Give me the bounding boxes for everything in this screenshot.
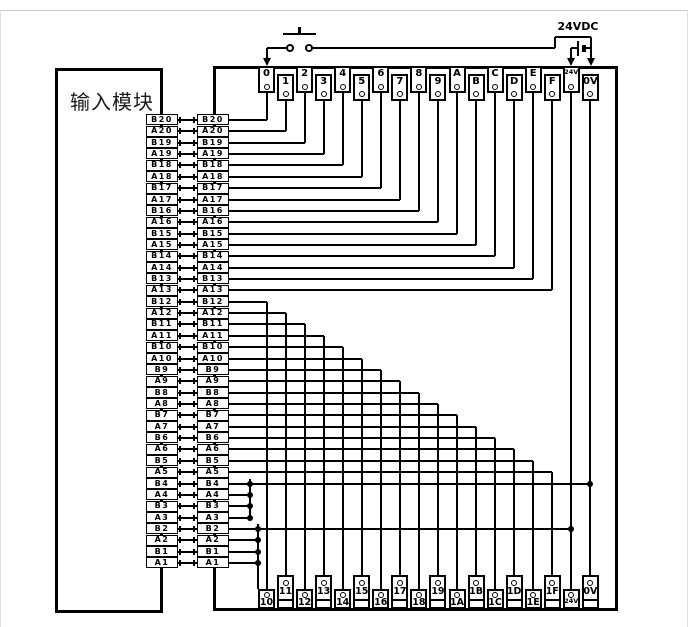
- terminal-label: 18: [409, 597, 429, 608]
- pin-label: A13: [197, 285, 229, 294]
- wire-row-B11: [229, 323, 305, 325]
- pin-label: B16: [197, 206, 229, 215]
- terminal-label: 6: [371, 68, 391, 79]
- pin-label: A16: [197, 217, 229, 226]
- pin-link-tick: [179, 276, 181, 282]
- pin-label: A6: [146, 444, 178, 453]
- terminal-label: 3: [314, 76, 334, 87]
- wire-row-B10: [229, 346, 343, 348]
- pin-link-tick: [179, 458, 181, 464]
- bus-24v: [570, 93, 572, 594]
- pin-label: B6: [146, 433, 178, 442]
- wire-top-3: [323, 100, 325, 154]
- terminal-label: 5: [352, 76, 372, 87]
- pin-link-tick: [193, 356, 195, 362]
- wire-row-B2: [229, 528, 571, 530]
- wire-v: [266, 48, 268, 58]
- wire-v: [570, 48, 572, 58]
- pin-link-tick: [179, 537, 181, 543]
- wire-top-5: [361, 100, 363, 177]
- wire-row-A20: [229, 130, 286, 132]
- terminal-label: 1E: [523, 597, 543, 608]
- terminal-label: 17: [390, 586, 410, 597]
- pin-label: B1: [197, 547, 229, 556]
- pin-link-tick: [179, 367, 181, 373]
- terminal-screw-icon: [283, 91, 289, 97]
- wire-top-7: [399, 100, 401, 200]
- pin-link-tick: [193, 242, 195, 248]
- pin-label: B14: [197, 251, 229, 260]
- pin-link-tick: [179, 231, 181, 237]
- pin-label: B7: [146, 410, 178, 419]
- wire-row-B15: [229, 233, 457, 235]
- terminal-label: 10: [257, 597, 277, 608]
- wire-row-B8: [229, 392, 419, 394]
- pin-link-tick: [193, 560, 195, 566]
- pin-label: A9: [146, 376, 178, 385]
- pin-label: B2: [146, 524, 178, 533]
- wire-row-B5: [229, 460, 533, 462]
- pin-label: A15: [197, 240, 229, 249]
- pin-link-tick: [193, 287, 195, 293]
- wire-top-4: [342, 93, 344, 165]
- switch-actuator: [298, 27, 301, 34]
- wire-row-A8: [229, 403, 438, 405]
- pin-label: B13: [197, 274, 229, 283]
- terminal-divider: [507, 599, 522, 601]
- terminal-label: 19: [428, 586, 448, 597]
- wire-bottom-1D: [513, 449, 515, 583]
- pin-label: A14: [146, 263, 178, 272]
- pin-label: B18: [146, 160, 178, 169]
- pin-link-tick: [179, 208, 181, 214]
- pin-link-tick: [193, 492, 195, 498]
- terminal-screw-icon: [568, 84, 574, 90]
- pin-label: A19: [146, 149, 178, 158]
- terminal-label: 13: [314, 586, 334, 597]
- wire-row-B16: [229, 210, 419, 212]
- arrow-down-icon: [587, 58, 595, 66]
- terminal-label: F: [542, 76, 562, 87]
- wire-top-8: [418, 93, 420, 211]
- terminal-label: 1F: [542, 586, 562, 597]
- pin-link-tick: [179, 299, 181, 305]
- pin-link-tick: [179, 321, 181, 327]
- pin-label: B15: [146, 229, 178, 238]
- terminal-screw-icon: [302, 84, 308, 90]
- wire-row-A13: [229, 289, 552, 291]
- terminal-screw-icon: [397, 91, 403, 97]
- terminal-label: 0V: [580, 76, 600, 87]
- pin-link-tick: [193, 367, 195, 373]
- pin-link-tick: [179, 401, 181, 407]
- pin-link-tick: [193, 412, 195, 418]
- wire-top-9: [437, 100, 439, 222]
- pin-link-tick: [193, 481, 195, 487]
- pin-label: A20: [197, 126, 229, 135]
- window-left-border: [0, 10, 1, 627]
- pin-link-tick: [193, 299, 195, 305]
- pin-link-tick: [179, 310, 181, 316]
- switch-contact-icon: [286, 44, 294, 52]
- pin-link-tick: [193, 140, 195, 146]
- pin-link-tick: [179, 197, 181, 203]
- wire-v: [554, 37, 556, 48]
- pin-link-tick: [179, 242, 181, 248]
- pin-label: A13: [146, 285, 178, 294]
- pin-link-tick: [179, 481, 181, 487]
- pin-link-tick: [179, 344, 181, 350]
- terminal-label: C: [485, 68, 505, 79]
- pin-link-tick: [193, 197, 195, 203]
- wire-top-C: [494, 93, 496, 256]
- wire-top-6: [380, 93, 382, 188]
- wire-h: [585, 47, 591, 49]
- pin-link-tick: [193, 549, 195, 555]
- terminal-label: 11: [276, 586, 296, 597]
- pin-link-tick: [193, 515, 195, 521]
- terminal-label: E: [523, 68, 543, 79]
- wire-row-A18: [229, 176, 362, 178]
- pin-label: B9: [146, 365, 178, 374]
- pin-label: B12: [197, 297, 229, 306]
- pin-label: A10: [146, 354, 178, 363]
- terminal-screw-icon: [378, 84, 384, 90]
- terminal-label: 9: [428, 76, 448, 87]
- pin-link-tick: [193, 231, 195, 237]
- terminal-divider: [316, 599, 331, 601]
- pin-label: B13: [146, 274, 178, 283]
- battery-long-plate-icon: [577, 41, 579, 56]
- wire-top-0: [266, 93, 268, 120]
- wire-row-A5: [229, 471, 552, 473]
- wire-bottom-1A: [456, 415, 458, 594]
- junction-dot-icon: [247, 481, 253, 487]
- pin-label: B4: [197, 479, 229, 488]
- terminal-label: 1D: [504, 586, 524, 597]
- wire-row-A16: [229, 221, 438, 223]
- wire-row-A7: [229, 426, 476, 428]
- terminal-label: 14: [333, 597, 353, 608]
- pin-label: B1: [146, 547, 178, 556]
- junction-dot-icon: [247, 515, 253, 521]
- pin-label: B19: [146, 138, 178, 147]
- wire-row-B17: [229, 187, 381, 189]
- pin-link-tick: [179, 333, 181, 339]
- pin-label: A12: [146, 308, 178, 317]
- pin-label: B17: [146, 183, 178, 192]
- terminal-screw-icon: [321, 91, 327, 97]
- pin-label: B7: [197, 410, 229, 419]
- pin-link-tick: [179, 560, 181, 566]
- wire-row: [229, 562, 258, 564]
- pin-label: A10: [197, 354, 229, 363]
- pin-link-tick: [179, 378, 181, 384]
- terminal-divider: [469, 599, 484, 601]
- pin-label: B6: [197, 433, 229, 442]
- pin-link-tick: [193, 253, 195, 259]
- pin-link-tick: [193, 321, 195, 327]
- pin-link-tick: [193, 469, 195, 475]
- wire-top-2: [304, 93, 306, 143]
- switch-contact-icon: [305, 44, 313, 52]
- terminal-label: 7: [390, 76, 410, 87]
- pin-link-tick: [179, 253, 181, 259]
- terminal-screw-icon: [264, 84, 270, 90]
- wire-row-A9: [229, 380, 400, 382]
- pin-link-tick: [193, 276, 195, 282]
- wire-top-D: [513, 100, 515, 268]
- pin-label: B9: [197, 365, 229, 374]
- terminal-label: 0V: [580, 586, 600, 597]
- pin-label: A18: [197, 172, 229, 181]
- wire-row-A19: [229, 153, 324, 155]
- wire-row-B7: [229, 414, 457, 416]
- arrow-down-icon: [263, 58, 271, 66]
- pin-link-tick: [179, 515, 181, 521]
- terminal-label: B: [466, 76, 486, 87]
- pin-label: A17: [146, 195, 178, 204]
- terminal-label: 24V: [561, 68, 581, 76]
- pin-link-tick: [193, 390, 195, 396]
- wire-row-A6: [229, 448, 514, 450]
- pin-link-tick: [179, 265, 181, 271]
- pin-link-tick: [193, 378, 195, 384]
- pin-link-tick: [179, 356, 181, 362]
- junction-dot-icon: [255, 526, 261, 532]
- pin-label: A11: [146, 331, 178, 340]
- pin-label: B3: [146, 501, 178, 510]
- pin-label: B10: [197, 342, 229, 351]
- pin-label: A20: [146, 126, 178, 135]
- terminal-label: 2: [295, 68, 315, 79]
- pin-label: A1: [146, 558, 178, 567]
- pin-label: B18: [197, 160, 229, 169]
- pin-link-tick: [179, 128, 181, 134]
- wire-row-B20: [229, 119, 267, 121]
- pin-link-tick: [193, 128, 195, 134]
- terminal-divider: [392, 599, 407, 601]
- pin-label: A11: [197, 331, 229, 340]
- wire-row-A12: [229, 312, 286, 314]
- pin-label: A14: [197, 263, 229, 272]
- terminal-screw-icon: [359, 91, 365, 97]
- terminal-label: 8: [409, 68, 429, 79]
- supply-voltage-label: 24VDC: [552, 20, 604, 33]
- junction-dot-icon: [587, 481, 593, 487]
- pin-label: A16: [146, 217, 178, 226]
- wire-row: [229, 551, 258, 553]
- pin-label: A2: [197, 535, 229, 544]
- pin-label: B5: [146, 456, 178, 465]
- pin-link-tick: [193, 174, 195, 180]
- pin-link-tick: [179, 162, 181, 168]
- wiring-diagram: 输入模块 24VDC B20B20A20A20B19B19A19A19B18B1…: [0, 0, 688, 627]
- pin-label: B4: [146, 479, 178, 488]
- pin-link-tick: [193, 537, 195, 543]
- pin-link-tick: [179, 140, 181, 146]
- arrow-down-icon: [567, 58, 575, 66]
- pin-label: B8: [197, 388, 229, 397]
- pin-label: B3: [197, 501, 229, 510]
- wire-top-A: [456, 93, 458, 234]
- wire-h: [555, 36, 591, 38]
- pin-link-tick: [179, 469, 181, 475]
- pin-link-tick: [193, 435, 195, 441]
- wire-row-B9: [229, 369, 381, 371]
- wire-row-A17: [229, 199, 400, 201]
- terminal-screw-icon: [340, 84, 346, 90]
- pin-label: B20: [146, 115, 178, 124]
- input-module-label: 输入模块: [62, 86, 162, 115]
- junction-dot-icon: [255, 549, 261, 555]
- pin-label: B10: [146, 342, 178, 351]
- pin-link-tick: [193, 446, 195, 452]
- terminal-screw-icon: [416, 84, 422, 90]
- junction-dot-icon: [247, 492, 253, 498]
- pin-label: A17: [197, 195, 229, 204]
- wire-row-B6: [229, 437, 495, 439]
- terminal-label: D: [504, 76, 524, 87]
- terminal-screw-icon: [473, 91, 479, 97]
- terminal-divider: [354, 599, 369, 601]
- pin-link-tick: [193, 458, 195, 464]
- wire-row-A11: [229, 335, 324, 337]
- pin-link-tick: [193, 117, 195, 123]
- wire-top-F: [551, 100, 553, 290]
- pin-link-tick: [193, 310, 195, 316]
- terminal-label: 24V: [561, 597, 581, 605]
- pin-label: A5: [197, 467, 229, 476]
- wire-row-B18: [229, 164, 343, 166]
- pin-label: A3: [197, 513, 229, 522]
- terminal-label: 1B: [466, 586, 486, 597]
- pin-label: A12: [197, 308, 229, 317]
- wire-row-B12: [229, 301, 267, 303]
- pin-label: B11: [197, 319, 229, 328]
- pin-label: A8: [146, 399, 178, 408]
- pin-link-tick: [179, 424, 181, 430]
- pin-label: B8: [146, 388, 178, 397]
- pin-link-tick: [179, 287, 181, 293]
- terminal-divider: [583, 599, 598, 601]
- terminal-label: 1A: [447, 597, 467, 608]
- terminal-label: 16: [371, 597, 391, 608]
- pin-link-tick: [179, 435, 181, 441]
- wire-bottom-19: [437, 404, 439, 583]
- pin-link-tick: [179, 446, 181, 452]
- pin-label: A4: [197, 490, 229, 499]
- pin-link-tick: [193, 185, 195, 191]
- wire-top-1: [285, 100, 287, 131]
- terminal-label: 0: [257, 68, 277, 79]
- pin-link-tick: [179, 174, 181, 180]
- pin-link-tick: [179, 549, 181, 555]
- terminal-label: 15: [352, 586, 372, 597]
- wire-row-A15: [229, 244, 476, 246]
- pin-label: A1: [197, 558, 229, 567]
- terminal-screw-icon: [492, 84, 498, 90]
- wire-bottom-18: [418, 393, 420, 594]
- terminal-label: 12: [295, 597, 315, 608]
- pin-link-tick: [179, 412, 181, 418]
- wire-top-B: [475, 100, 477, 245]
- pin-link-tick: [179, 219, 181, 225]
- terminal-label: A: [447, 68, 467, 79]
- terminal-screw-icon: [454, 84, 460, 90]
- pin-link-tick: [193, 503, 195, 509]
- wire-row-B4: [229, 483, 590, 485]
- terminal-screw-icon: [435, 91, 441, 97]
- pin-label: A3: [146, 513, 178, 522]
- wire-row-A14: [229, 267, 514, 269]
- terminal-divider: [278, 599, 293, 601]
- pin-label: A5: [146, 467, 178, 476]
- pin-link-tick: [179, 390, 181, 396]
- terminal-label: 1: [276, 76, 296, 87]
- pin-label: B16: [146, 206, 178, 215]
- terminal-divider: [545, 599, 560, 601]
- pin-link-tick: [179, 526, 181, 532]
- terminal-label: 4: [333, 68, 353, 79]
- pin-link-tick: [193, 219, 195, 225]
- wire-top-E: [532, 93, 534, 279]
- pin-link-tick: [193, 265, 195, 271]
- pin-link-tick: [179, 503, 181, 509]
- wire-row-B13: [229, 278, 533, 280]
- wire-row-A10: [229, 358, 362, 360]
- terminal-label: 1C: [485, 597, 505, 608]
- bus-pins-24v: [257, 524, 259, 589]
- wire-h: [267, 47, 286, 49]
- pin-link-tick: [193, 401, 195, 407]
- pin-link-tick: [179, 185, 181, 191]
- terminal-divider: [430, 599, 445, 601]
- pin-label: A7: [197, 422, 229, 431]
- bus-0v: [589, 100, 591, 583]
- pin-label: A8: [197, 399, 229, 408]
- pin-label: B15: [197, 229, 229, 238]
- wire-h: [313, 47, 555, 49]
- pin-label: B17: [197, 183, 229, 192]
- pin-link-tick: [179, 117, 181, 123]
- pin-link-tick: [193, 424, 195, 430]
- pin-label: A15: [146, 240, 178, 249]
- pin-label: A18: [146, 172, 178, 181]
- pin-link-tick: [193, 344, 195, 350]
- wire-row-B14: [229, 255, 495, 257]
- terminal-screw-icon: [530, 84, 536, 90]
- pin-label: B5: [197, 456, 229, 465]
- pin-link-tick: [179, 492, 181, 498]
- pin-link-tick: [193, 162, 195, 168]
- pin-label: A9: [197, 376, 229, 385]
- pin-link-tick: [193, 151, 195, 157]
- pin-link-tick: [193, 333, 195, 339]
- pin-label: A4: [146, 490, 178, 499]
- pin-label: B14: [146, 251, 178, 260]
- junction-dot-icon: [255, 560, 261, 566]
- pin-label: A6: [197, 444, 229, 453]
- pin-link-tick: [193, 526, 195, 532]
- wire-row-B19: [229, 142, 305, 144]
- pin-label: A19: [197, 149, 229, 158]
- pin-link-tick: [179, 151, 181, 157]
- pin-link-tick: [193, 208, 195, 214]
- pin-label: B20: [197, 115, 229, 124]
- pin-label: B11: [146, 319, 178, 328]
- pin-label: A7: [146, 422, 178, 431]
